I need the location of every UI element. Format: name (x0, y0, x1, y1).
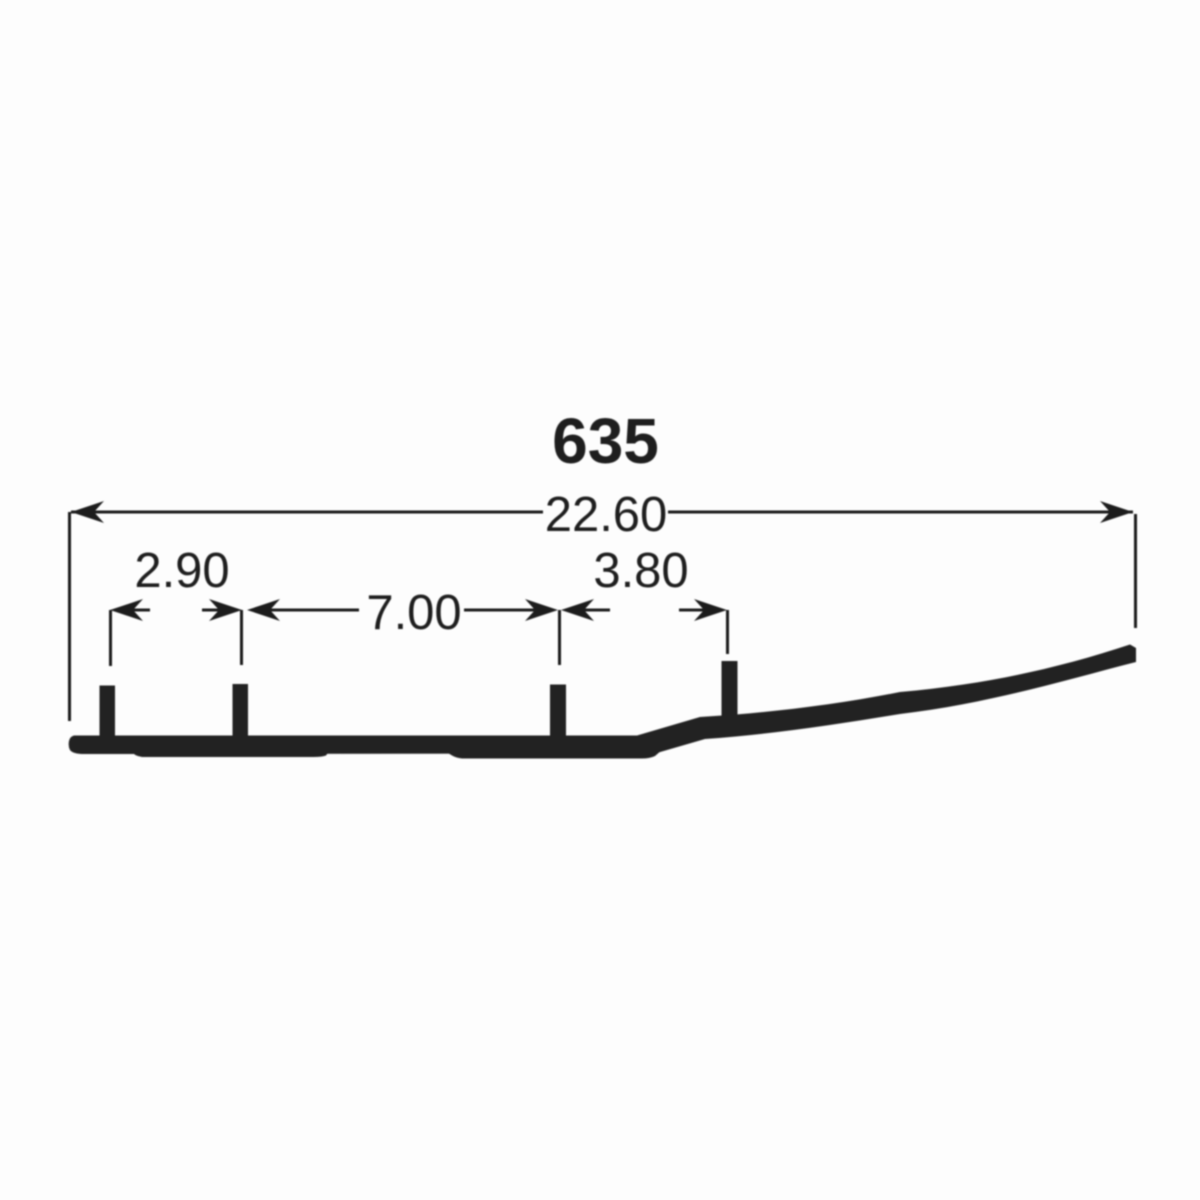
svg-text:22.60: 22.60 (545, 488, 668, 542)
svg-text:3.80: 3.80 (593, 544, 688, 598)
svg-text:7.00: 7.00 (366, 586, 461, 640)
svg-text:2.90: 2.90 (134, 544, 229, 598)
svg-text:635: 635 (552, 405, 659, 477)
